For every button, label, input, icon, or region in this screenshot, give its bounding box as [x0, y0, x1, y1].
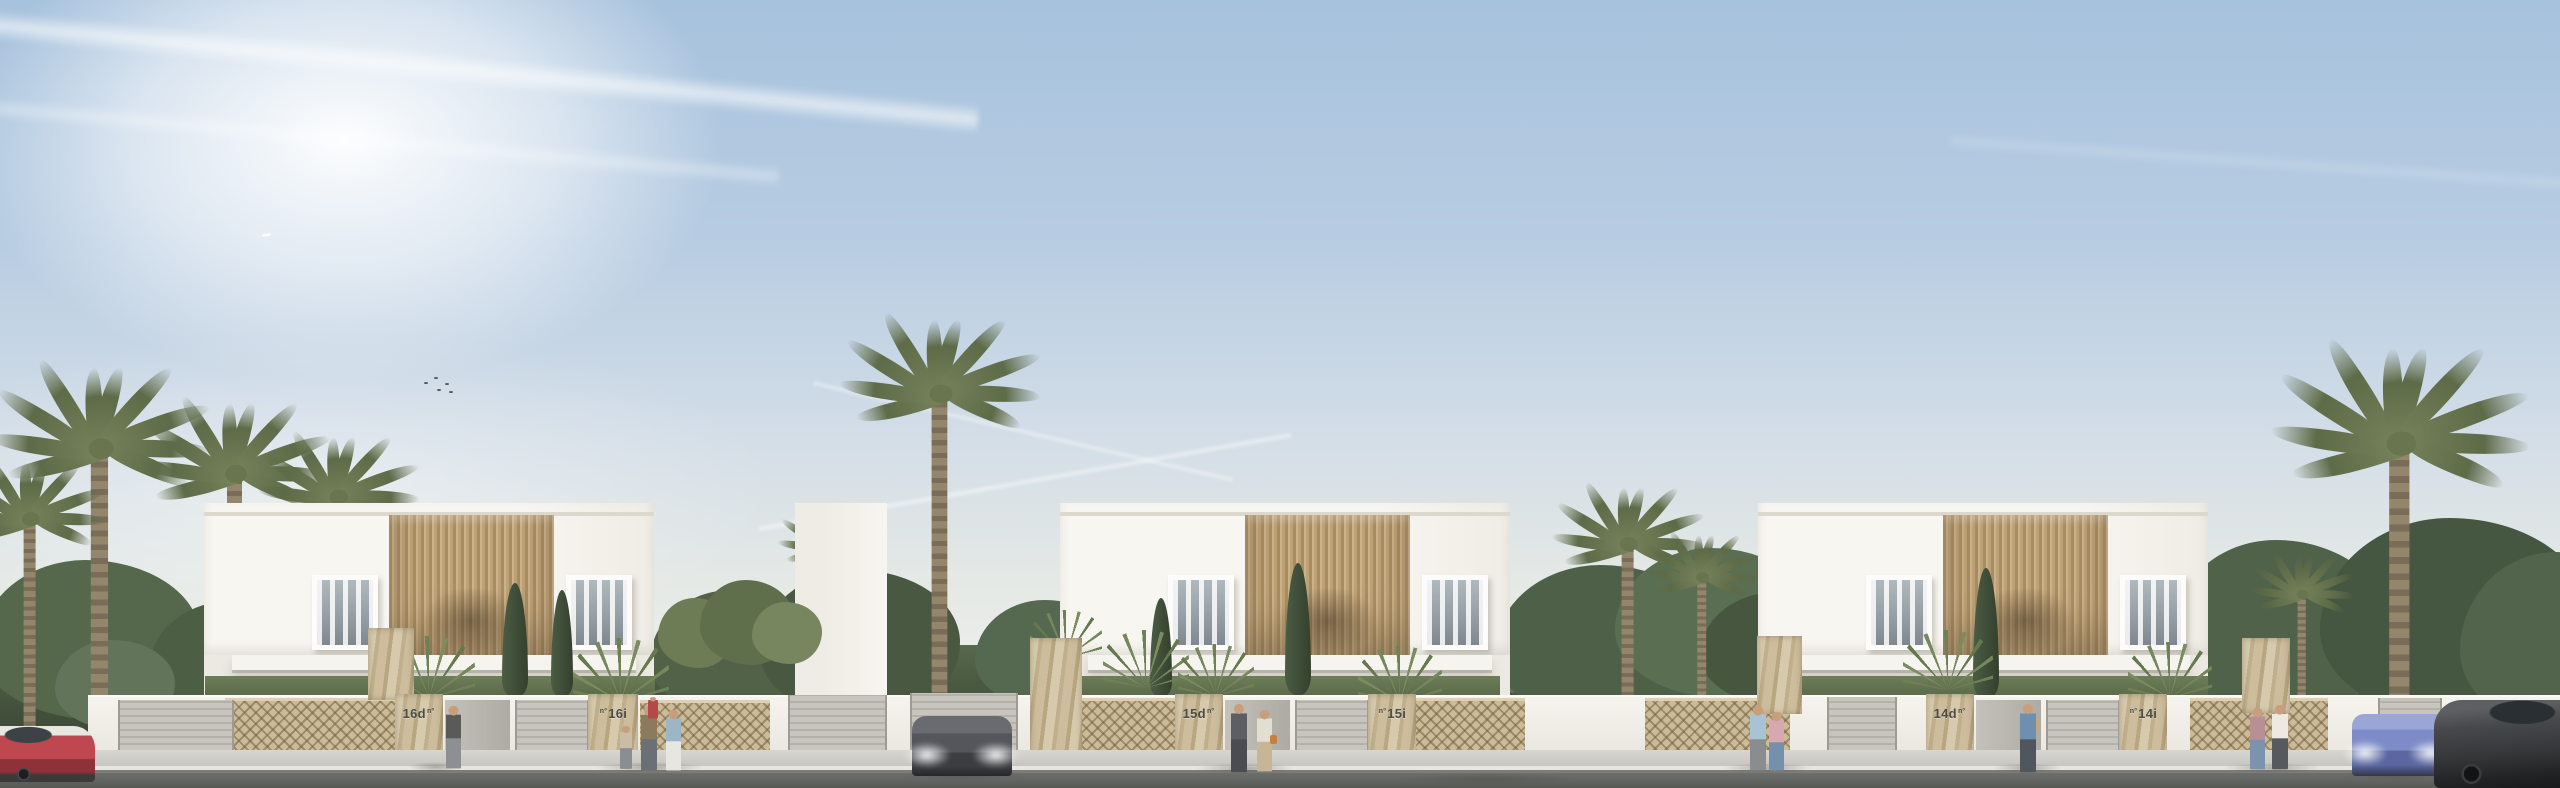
- fan-palm: [1178, 644, 1254, 696]
- lattice-wall-panel: [225, 698, 400, 751]
- driveway-gate: [118, 700, 234, 757]
- pedestrian: [1750, 706, 1766, 772]
- shadow: [1722, 763, 1812, 773]
- pedestrian: [2020, 704, 2036, 774]
- car-blue-sedan: [1406, 716, 1566, 782]
- window-glass: [1871, 580, 1927, 645]
- palm-trunk: [2298, 593, 2306, 703]
- driveway-gate: [788, 695, 887, 757]
- window-glass: [571, 580, 627, 645]
- pedestrian: [446, 706, 461, 770]
- stone-pier: [1030, 638, 1082, 757]
- plaque-16i: nº16i: [588, 706, 638, 721]
- stone-pier: [368, 628, 414, 700]
- architectural-render: 16dnº nº16i 15dnº nº15i 14dnº nº14i: [0, 0, 2560, 788]
- pedestrian: [1769, 712, 1784, 772]
- wood-slat-screen: [1245, 515, 1410, 658]
- palm-trunk: [24, 517, 36, 741]
- pedestrian-gate: [515, 700, 589, 757]
- window-glass: [2125, 580, 2181, 645]
- fan-palm: [573, 638, 669, 702]
- olive-tree: [752, 602, 822, 664]
- stone-pier: [1757, 636, 1802, 714]
- rear-building-volume: [795, 503, 887, 699]
- bird-flock: [424, 382, 428, 384]
- fan-palm: [1103, 630, 1189, 688]
- car-red-hatchback: [0, 726, 95, 782]
- headlight-glow: [903, 742, 951, 768]
- palm-trunk: [1622, 542, 1634, 702]
- pedestrian: [1231, 704, 1247, 774]
- window-glass: [1427, 580, 1483, 645]
- plaque-15d: 15dnº: [1175, 706, 1223, 721]
- window-glass: [317, 580, 373, 645]
- pedestrian: [2250, 708, 2265, 771]
- plaque-14i: nº14i: [2119, 706, 2167, 721]
- palm-trunk: [932, 391, 948, 743]
- pedestrian-gate: [2046, 700, 2120, 757]
- headlight-glow: [972, 742, 1020, 768]
- gate-pillar-14i: nº14i: [2119, 694, 2167, 757]
- stone-pier: [2242, 638, 2290, 713]
- upper-window: [1422, 575, 1488, 650]
- upper-window: [2120, 575, 2186, 650]
- gate-pillar-15d: 15dnº: [1175, 694, 1223, 757]
- window-glass: [1173, 580, 1229, 645]
- gate-pillar-16d: 16dnº: [395, 694, 443, 757]
- contrail: [1950, 133, 2560, 194]
- road: [0, 773, 2560, 788]
- car-dark-sedan: [2434, 700, 2560, 788]
- pedestrian: [666, 710, 681, 772]
- pedestrian-child: [620, 726, 632, 770]
- handbag: [1270, 735, 1277, 744]
- palm-trunk: [1697, 576, 1706, 696]
- pedestrian-toddler: [648, 697, 658, 719]
- gate-pillar-14d: 14dnº: [1926, 694, 1974, 757]
- plaque-14d: 14dnº: [1926, 706, 1974, 721]
- pedestrian: [2272, 705, 2288, 771]
- fan-palm: [1903, 630, 1993, 690]
- plaque-15i: nº15i: [1368, 706, 1416, 721]
- driveway-gate: [1827, 697, 1897, 757]
- headlight-glow: [2342, 740, 2388, 766]
- palm-trunk: [2389, 440, 2409, 703]
- pedestrian-gate: [1295, 700, 1369, 757]
- plaque-16d: 16dnº: [395, 706, 443, 721]
- lattice-wall-panel: [640, 700, 770, 751]
- fan-palm: [2128, 642, 2212, 698]
